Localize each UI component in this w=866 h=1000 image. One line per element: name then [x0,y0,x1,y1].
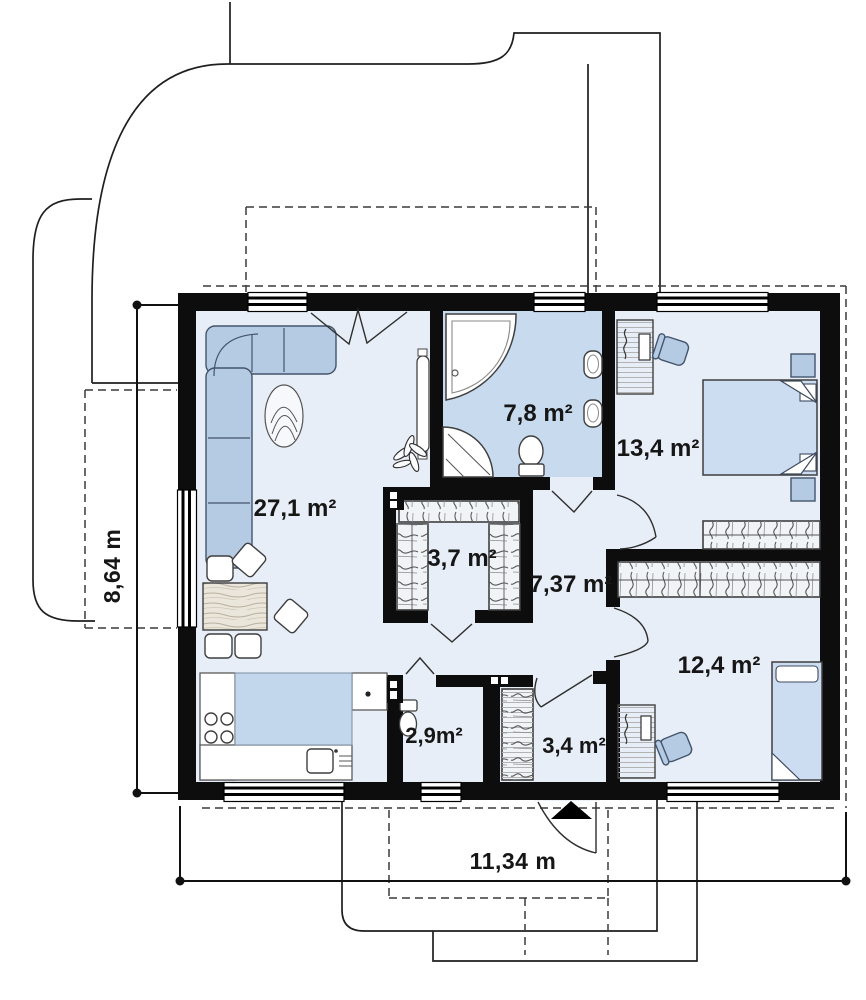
wall-bathroom-left [430,311,443,490]
window-bedroom2-bottom [667,783,779,802]
label-bathroom: 7,8 m² [503,400,572,427]
label-bedroom2: 12,4 m² [678,652,761,679]
desk-monitor [639,334,650,360]
porch-steps-dashed [525,898,608,955]
wardrobe-bedroom2-clothes [618,562,820,597]
kitchen-worktop [235,673,352,745]
shaft-box-wc [387,677,403,703]
window-bathroom-top [534,293,585,312]
closet-top-clothes [399,501,519,522]
terrace-top-dashed [246,207,596,292]
sofa-top-section [206,326,336,374]
dining-chair [235,634,261,658]
shaft-box-wardrobe [387,489,404,510]
window-living-top [248,293,307,312]
radiator [417,356,429,452]
entrance-arrow [551,801,592,819]
window-wc-bottom [421,783,461,802]
sofa-left-section [206,368,252,568]
coat-closet-clothes [502,689,533,780]
dim-dot [842,877,851,886]
dining-table [203,583,267,630]
wall-bedroom1-bottom [608,549,822,561]
label-wardrobe: 3,7 m² [427,545,496,572]
height-dimension-line [137,305,178,793]
dining-chair [205,634,232,658]
kitchen-counter-corner [352,673,387,710]
bed-pillow [776,666,818,682]
toilet-bathroom [519,436,544,476]
window-kitchen-bottom [224,783,344,802]
window-bedroom1-top [657,293,768,312]
dim-dot [176,877,185,886]
dining-chair [207,556,233,581]
dim-dot [133,301,142,310]
dim-dot [133,789,142,798]
floor-plan-page: 8,64 m 11,34 m [0,0,866,1000]
floor-plan-canvas: 8,64 m 11,34 m [0,0,866,1000]
label-entrance: 3,4 m² [542,733,606,758]
radiator-valve [418,349,427,356]
window-living-left [178,490,197,627]
wall-wc-closet-top [436,675,533,687]
closet-left-clothes [397,524,428,610]
wall-outer-right [820,293,840,800]
wall-closet-left [483,687,500,782]
wall-wardrobe-right [520,500,533,623]
wall-wardrobe-bottom-left [383,610,428,623]
height-dimension-label: 8,64 m [99,529,125,604]
desk-monitor [641,716,651,740]
label-living-room: 27,1 m² [254,495,337,522]
label-hallway: 7,37 m² [530,571,613,598]
nightstand [791,354,815,377]
kitchen-hob-dot [365,691,370,696]
width-dimension-label: 11,34 m [470,848,557,874]
wall-wardrobe-top [383,487,533,500]
wall-bathroom-bedroom1 [602,311,615,490]
nightstand [791,478,815,501]
label-wc: 2,9m² [405,723,462,748]
label-bedroom1: 13,4 m² [617,435,700,462]
wall-hall-top-stub [593,671,620,684]
